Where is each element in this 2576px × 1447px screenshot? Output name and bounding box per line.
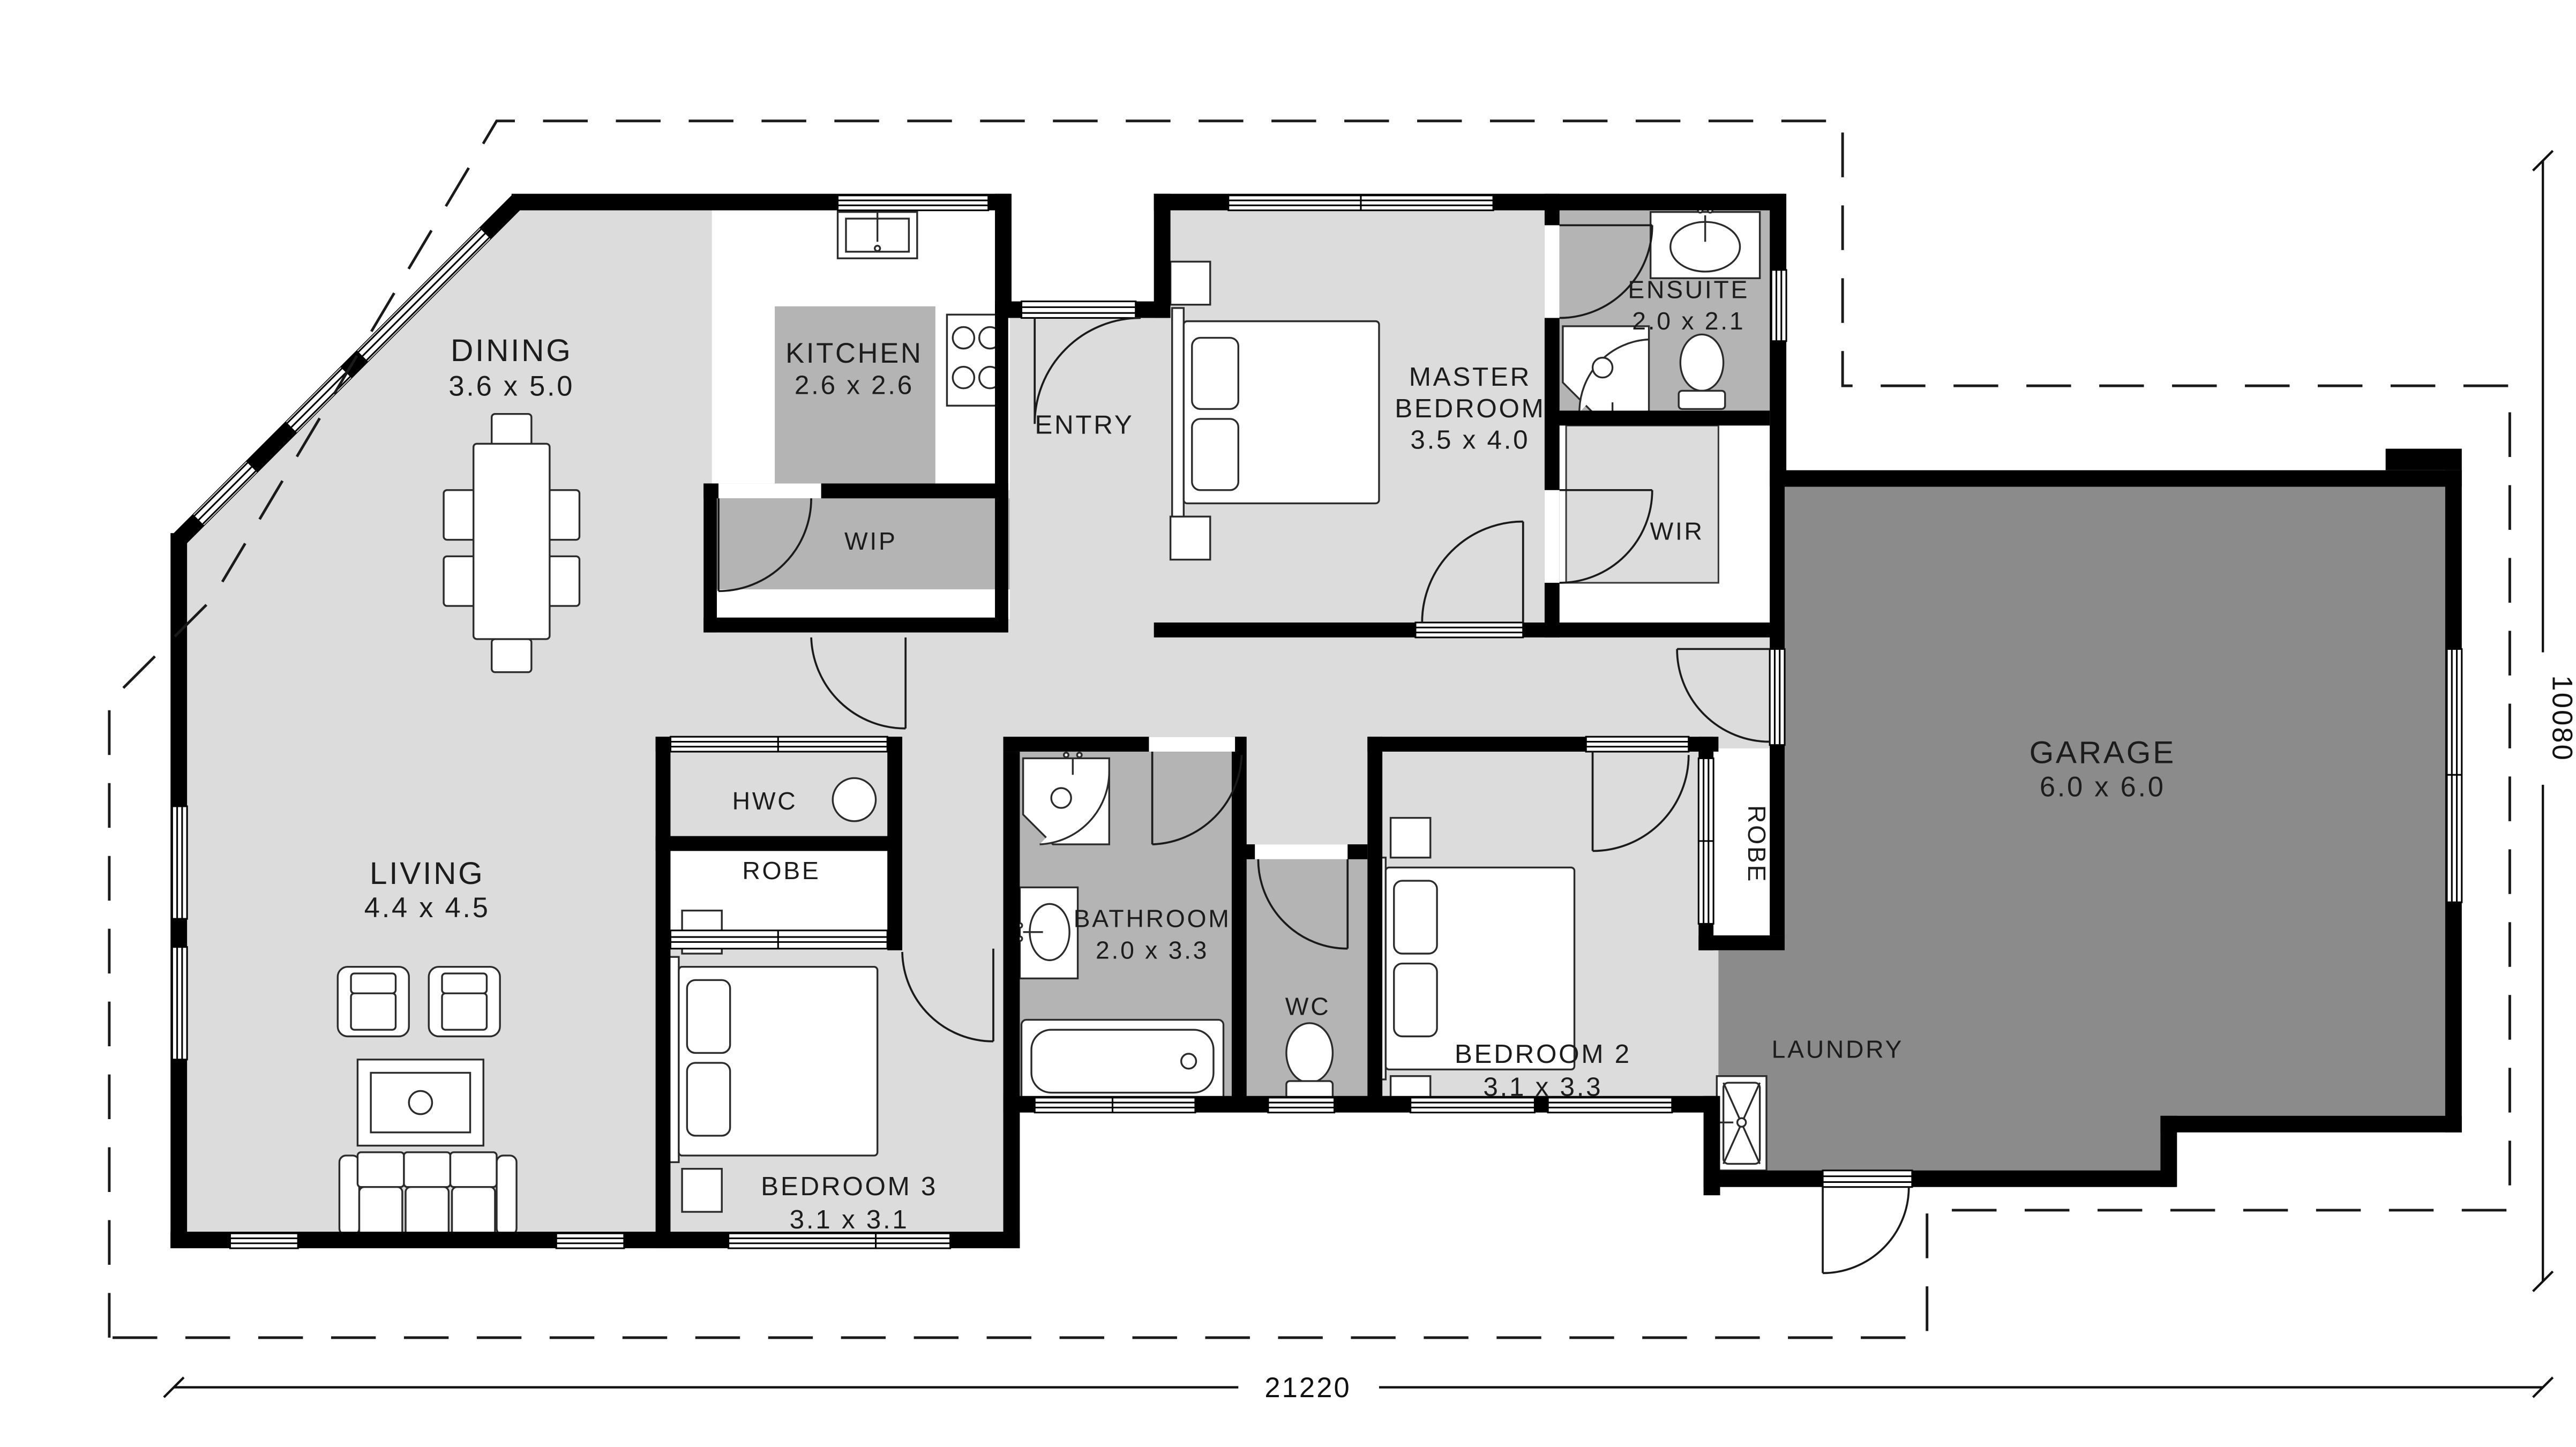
- window: [838, 196, 989, 211]
- window: [729, 1233, 950, 1248]
- label-bedroom2: BEDROOM 2: [1455, 1039, 1631, 1069]
- wall: [703, 483, 717, 632]
- wall: [995, 194, 1012, 318]
- overall-width-dimension: 21220: [1264, 1372, 1351, 1404]
- label-robe-hall: ROBE: [742, 857, 820, 884]
- wall: [1704, 1171, 2176, 1187]
- window: [1229, 196, 1493, 211]
- wall: [2160, 1116, 2461, 1133]
- label-hwc: HWC: [732, 787, 798, 815]
- coffee-table-icon: [357, 1060, 483, 1146]
- armchair-icon: [429, 967, 500, 1037]
- bathroom-vanity-icon: [1017, 887, 1077, 978]
- wir-carpet: [1566, 425, 1718, 583]
- wall: [1367, 737, 1382, 1104]
- label-wir: WIR: [1650, 518, 1704, 545]
- label-dining-dims: 3.6 x 5.0: [448, 371, 574, 402]
- label-bedroom3-dims: 3.1 x 3.1: [790, 1205, 909, 1234]
- label-garage: GARAGE: [2030, 736, 2176, 770]
- label-bathroom-dims: 2.0 x 3.3: [1096, 936, 1209, 964]
- label-kitchen-dims: 2.6 x 2.6: [795, 371, 914, 400]
- label-laundry: LAUNDRY: [1772, 1036, 1904, 1063]
- label-ensuite-dims: 2.0 x 2.1: [1632, 307, 1745, 335]
- label-wip: WIP: [844, 527, 897, 555]
- wall: [1770, 470, 2462, 487]
- kitchen-sink-icon: [838, 206, 917, 258]
- ensuite-vanity-icon: [1651, 208, 1760, 278]
- wall: [2386, 449, 2462, 470]
- label-dining: DINING: [451, 333, 573, 368]
- label-robe-bedroom2: ROBE: [1743, 805, 1771, 883]
- label-living-dims: 4.4 x 4.5: [364, 892, 490, 924]
- bathtub-icon: [1022, 1020, 1224, 1103]
- label-master-1: MASTER: [1409, 362, 1531, 392]
- armchair-icon: [338, 967, 409, 1037]
- window: [1771, 270, 1786, 341]
- window: [230, 1233, 298, 1248]
- wc-toilet-icon: [1286, 1023, 1333, 1101]
- door-threshold: [1586, 737, 1689, 752]
- sliding-door: [1698, 758, 1713, 924]
- wall: [1004, 752, 1020, 1248]
- window: [1268, 1098, 1335, 1113]
- overall-height-dimension: 10080: [2547, 675, 2576, 761]
- wip-bench: [712, 589, 1010, 619]
- sliding-door: [670, 931, 887, 949]
- door-threshold: [1416, 623, 1523, 638]
- wall: [703, 618, 1008, 633]
- hwc-cylinder-icon: [833, 778, 875, 821]
- window: [172, 806, 187, 919]
- label-garage-dims: 6.0 x 6.0: [2040, 771, 2166, 803]
- laundry-door: [1823, 1187, 1909, 1273]
- room-garage-laundry-floor: [1718, 487, 2447, 1179]
- label-living: LIVING: [370, 856, 485, 891]
- door-threshold: [1823, 1171, 1912, 1187]
- label-bedroom2-dims: 3.1 x 3.3: [1483, 1073, 1602, 1102]
- label-bathroom: BATHROOM: [1074, 905, 1231, 933]
- wall: [1558, 623, 1785, 638]
- wall: [1558, 410, 1770, 425]
- laundry-tub-icon: [1713, 1076, 1766, 1171]
- sliding-door: [670, 737, 887, 752]
- dimension-bottom: 21220: [164, 1372, 2553, 1404]
- label-kitchen: KITCHEN: [785, 338, 923, 369]
- wall: [1154, 194, 1171, 318]
- label-wc: WC: [1285, 992, 1331, 1020]
- sofa-icon: [339, 1152, 516, 1237]
- wall: [656, 737, 671, 1248]
- window: [172, 947, 187, 1060]
- label-master-dims: 3.5 x 4.0: [1410, 425, 1530, 455]
- door-threshold: [1022, 302, 1136, 318]
- label-master-2: BEDROOM: [1395, 394, 1545, 423]
- wall: [995, 318, 1008, 632]
- label-entry: ENTRY: [1035, 410, 1134, 440]
- label-ensuite: ENSUITE: [1628, 275, 1749, 303]
- ensuite-toilet-icon: [1679, 334, 1725, 409]
- floor-plan-canvas: 21220 10080 DINING 3.6 x 5.0 KITCHEN 2.6…: [0, 0, 2576, 1447]
- window: [1035, 1098, 1195, 1113]
- window: [556, 1233, 624, 1248]
- wall: [656, 836, 901, 851]
- wall: [1232, 737, 1247, 1104]
- window: [2447, 649, 2462, 902]
- door-threshold: [1770, 649, 1785, 745]
- label-bedroom3: BEDROOM 3: [761, 1172, 938, 1201]
- dimension-right: 10080: [2533, 151, 2576, 1291]
